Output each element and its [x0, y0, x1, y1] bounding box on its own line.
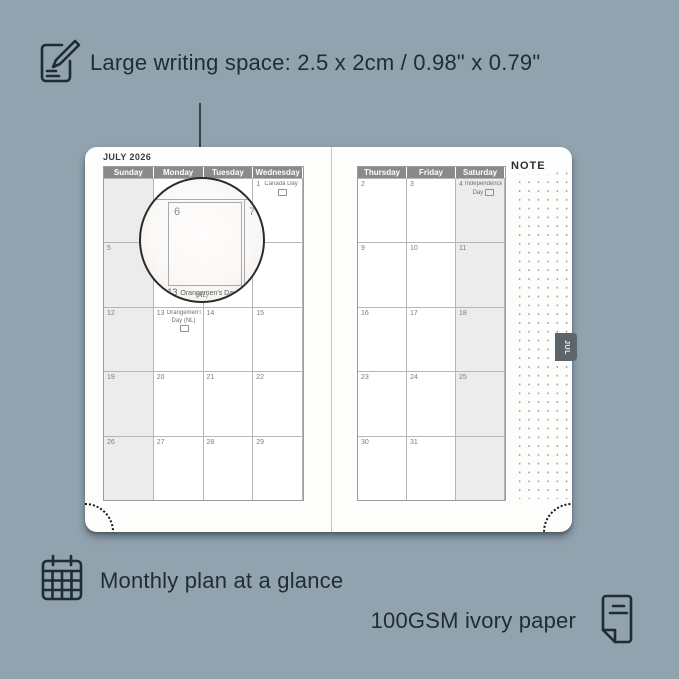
calendar-cell-25: 25 [456, 371, 505, 435]
day-number: 22 [256, 374, 264, 382]
calendar-cell-28: 28 [204, 436, 254, 500]
holiday-label: Canada Day [262, 181, 300, 198]
calendar-cell-3: 3 [407, 178, 456, 242]
holiday-label: Orangemen's Day (NL) [167, 310, 201, 334]
holiday-flag-icon [278, 189, 287, 196]
day-number: 21 [207, 374, 215, 382]
day-number: 19 [107, 374, 115, 382]
calendar-cell-24: 24 [407, 371, 456, 435]
day-number: 14 [207, 310, 215, 318]
bottom-right-caption: 100GSM ivory paper [371, 608, 576, 634]
day-number: 1 [256, 181, 260, 189]
day-number: 29 [256, 439, 264, 447]
calendar-cell-20: 20 [154, 371, 204, 435]
day-number: 30 [361, 439, 369, 447]
loupe-day-number: 6 [174, 206, 180, 218]
loupe-day-number: 7 [249, 206, 255, 218]
day-number: 12 [107, 310, 115, 318]
calendar-cell-31: 31 [407, 436, 456, 500]
day-number: 28 [207, 439, 215, 447]
calendar-cell-13: 13Orangemen's Day (NL) [154, 307, 204, 371]
calendar-cell-21: 21 [204, 371, 254, 435]
notepad-pencil-icon [36, 37, 82, 87]
calendar-cell-23: 23 [358, 371, 407, 435]
loupe-holiday-caption-sub: (NL) [141, 293, 263, 299]
day-header: Saturday [456, 167, 505, 178]
calendar-cell-4: 4Independence Day [456, 178, 505, 242]
calendar-cell-29: 29 [253, 436, 303, 500]
note-label: NOTE [511, 160, 549, 174]
calendar-cell-19: 19 [104, 371, 154, 435]
day-number: 11 [459, 245, 466, 253]
day-number: 3 [410, 181, 414, 189]
day-number: 26 [107, 439, 115, 447]
holiday-label: Independence Day [465, 181, 502, 198]
day-number: 9 [361, 245, 365, 253]
calendar-cell-12: 12 [104, 307, 154, 371]
holiday-flag-icon [180, 325, 189, 332]
day-header: Thursday [358, 167, 407, 178]
day-number: 18 [459, 310, 467, 318]
calendar-cell-27: 27 [154, 436, 204, 500]
calendar-cell-16: 16 [358, 307, 407, 371]
bottom-left-caption: Monthly plan at a glance [100, 568, 343, 594]
calendar-cell-2: 2 [358, 178, 407, 242]
month-tab-label: JUL [562, 340, 569, 355]
calendar-grid-icon [40, 553, 84, 603]
calendar-cell-22: 22 [253, 371, 303, 435]
calendar-cell-18: 18 [456, 307, 505, 371]
top-caption: Large writing space: 2.5 x 2cm / 0.98" x… [90, 50, 540, 76]
day-header: Tuesday [204, 167, 254, 178]
day-number: 25 [459, 374, 467, 382]
day-number: 23 [361, 374, 369, 382]
day-number: 20 [157, 374, 165, 382]
magnifier-loupe: 6 7 13Orangemen's Day (NL) [139, 177, 265, 303]
page-gutter [331, 147, 332, 532]
day-number: 15 [256, 310, 264, 318]
day-number: 10 [410, 245, 418, 253]
calendar-cell-empty [456, 436, 505, 500]
day-number: 27 [157, 439, 165, 447]
day-number: 5 [107, 245, 111, 253]
day-number: 4 [459, 181, 463, 189]
paper-sheet-icon [597, 593, 635, 645]
day-header: Sunday [104, 167, 154, 178]
calendar-cell-15: 15 [253, 307, 303, 371]
calendar-cell-17: 17 [407, 307, 456, 371]
month-title: JULY 2026 [103, 152, 151, 162]
day-header: Friday [407, 167, 456, 178]
holiday-flag-icon [485, 189, 494, 196]
calendar-cell-11: 11 [456, 242, 505, 306]
day-number: 16 [361, 310, 369, 318]
day-header: Wednesday [253, 167, 303, 178]
month-tab: JUL [555, 333, 577, 361]
stitch-arc-bottom-right [543, 503, 601, 561]
calendar-cell-30: 30 [358, 436, 407, 500]
calendar-grid-right: ThursdayFridaySaturday234Independence Da… [357, 166, 506, 501]
day-number: 13 [157, 310, 165, 318]
day-number: 24 [410, 374, 418, 382]
calendar-cell-26: 26 [104, 436, 154, 500]
calendar-cell-14: 14 [204, 307, 254, 371]
calendar-cell-9: 9 [358, 242, 407, 306]
day-number: 2 [361, 181, 365, 189]
day-number: 31 [410, 439, 418, 447]
day-number: 17 [410, 310, 418, 318]
calendar-cell-10: 10 [407, 242, 456, 306]
